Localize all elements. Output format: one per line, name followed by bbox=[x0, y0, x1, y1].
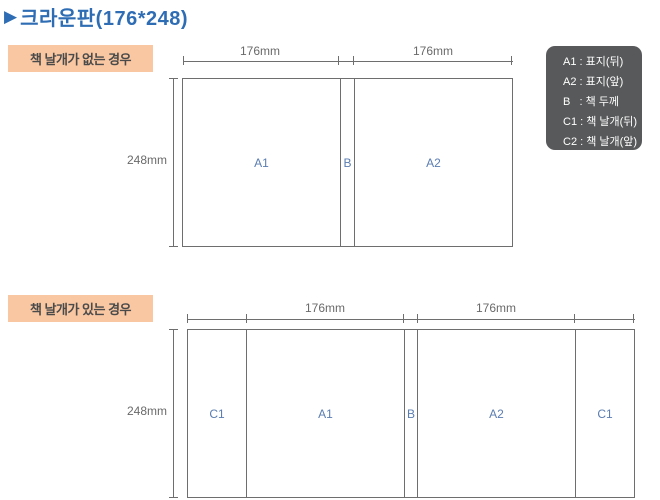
dim-tick bbox=[246, 314, 247, 323]
width-dim-label-a2: 176mm bbox=[446, 301, 546, 315]
dim-tick bbox=[169, 497, 178, 498]
section-a1: A1 bbox=[183, 79, 340, 246]
height-dim-label: 248mm bbox=[107, 404, 167, 418]
width-dim-line bbox=[183, 61, 513, 62]
width-dim-label-a1: 176mm bbox=[275, 301, 375, 315]
height-dim-line bbox=[173, 78, 174, 247]
case-label-no-flaps: 책 날개가 없는 경우 bbox=[8, 45, 153, 72]
height-dim-label: 248mm bbox=[107, 153, 167, 167]
legend-item-a1: A1 : 표지(뒤) bbox=[563, 52, 642, 72]
dim-tick bbox=[511, 56, 512, 65]
width-dim-label-a2: 176mm bbox=[383, 44, 483, 58]
legend-item-c1: C1 : 책 날개(뒤) bbox=[563, 112, 642, 132]
dim-tick bbox=[169, 78, 178, 79]
case-label-with-flaps: 책 날개가 있는 경우 bbox=[8, 295, 153, 322]
section-c1-left-flap: C1 bbox=[188, 330, 247, 497]
page-title: ▶ 크라운판(176*248) bbox=[4, 2, 188, 31]
section-a2: A2 bbox=[355, 79, 512, 246]
dim-tick bbox=[169, 329, 178, 330]
section-b-spine: B bbox=[404, 330, 418, 497]
triangle-bullet-icon: ▶ bbox=[4, 8, 17, 25]
dim-tick bbox=[353, 56, 354, 65]
dim-tick bbox=[183, 56, 184, 65]
legend-item-c2: C2 : 책 날개(앞) bbox=[563, 132, 642, 152]
dim-tick bbox=[417, 314, 418, 323]
section-a2: A2 bbox=[418, 330, 575, 497]
height-dim-line bbox=[173, 329, 174, 498]
page-title-text: 크라운판(176*248) bbox=[20, 2, 188, 31]
width-dim-label-a1: 176mm bbox=[210, 44, 310, 58]
section-b-spine: B bbox=[340, 79, 355, 246]
dim-tick bbox=[187, 314, 188, 323]
cover-diagram-no-flaps: A1 B A2 bbox=[182, 78, 513, 247]
dim-tick bbox=[633, 314, 634, 323]
section-a1: A1 bbox=[247, 330, 404, 497]
dim-tick bbox=[574, 314, 575, 323]
section-c1-right-flap: C1 bbox=[575, 330, 634, 497]
width-dim-line bbox=[187, 319, 635, 320]
dim-tick bbox=[169, 246, 178, 247]
cover-diagram-with-flaps: C1 A1 B A2 C1 bbox=[187, 329, 635, 498]
legend-item-b: B : 책 두께 bbox=[563, 92, 642, 112]
legend-box: A1 : 표지(뒤) A2 : 표지(앞) B : 책 두께 C1 : 책 날개… bbox=[546, 46, 642, 150]
legend-item-a2: A2 : 표지(앞) bbox=[563, 72, 642, 92]
dim-tick bbox=[403, 314, 404, 323]
dim-tick bbox=[338, 56, 339, 65]
